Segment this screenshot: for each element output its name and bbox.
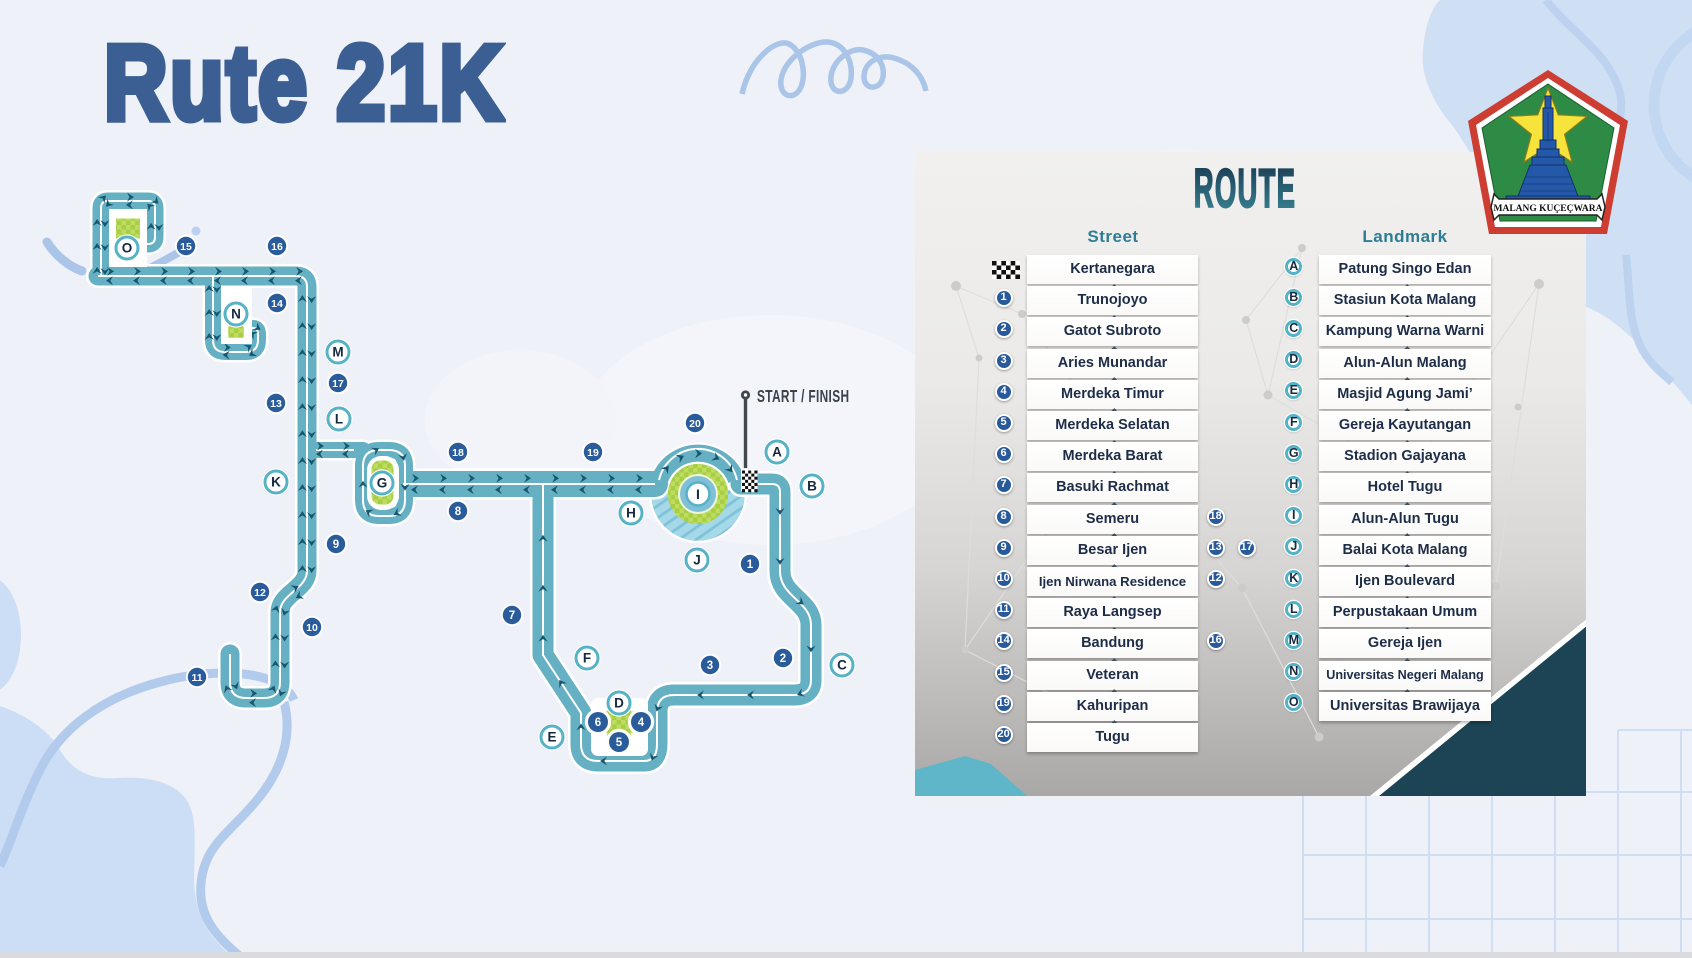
svg-text:7: 7 (509, 610, 515, 622)
svg-text:18: 18 (452, 447, 464, 459)
svg-text:3: 3 (707, 660, 713, 672)
svg-text:11: 11 (191, 672, 202, 684)
svg-text:E: E (547, 730, 556, 745)
svg-text:15: 15 (180, 241, 192, 253)
svg-text:B: B (807, 479, 817, 494)
svg-text:K: K (271, 475, 281, 490)
svg-text:L: L (335, 412, 343, 427)
svg-text:2: 2 (780, 653, 786, 665)
svg-text:H: H (626, 506, 636, 521)
svg-text:N: N (231, 307, 241, 322)
svg-text:10: 10 (306, 622, 318, 634)
svg-text:A: A (772, 445, 782, 460)
svg-text:D: D (614, 696, 624, 711)
svg-text:5: 5 (616, 737, 623, 749)
svg-text:20: 20 (689, 418, 701, 430)
svg-text:J: J (693, 553, 701, 568)
svg-text:F: F (583, 651, 591, 666)
svg-text:8: 8 (455, 506, 462, 518)
svg-text:ROUTE: ROUTE (1194, 159, 1296, 220)
svg-text:MALANG KUÇEÇWARA: MALANG KUÇEÇWARA (1494, 204, 1603, 214)
svg-text:13: 13 (270, 398, 282, 410)
svg-text:17: 17 (332, 378, 344, 390)
svg-text:O: O (122, 241, 133, 256)
svg-text:START / FINISH: START / FINISH (757, 387, 849, 407)
svg-text:19: 19 (587, 447, 599, 459)
svg-text:I: I (696, 486, 700, 502)
svg-text:12: 12 (254, 587, 266, 599)
svg-text:16: 16 (271, 241, 283, 253)
svg-text:4: 4 (638, 717, 645, 729)
svg-text:6: 6 (595, 717, 601, 729)
svg-text:G: G (377, 476, 388, 491)
svg-text:9: 9 (333, 539, 339, 551)
svg-text:M: M (332, 345, 343, 360)
svg-text:14: 14 (271, 298, 283, 310)
svg-text:1: 1 (747, 559, 754, 571)
svg-text:C: C (837, 658, 847, 673)
